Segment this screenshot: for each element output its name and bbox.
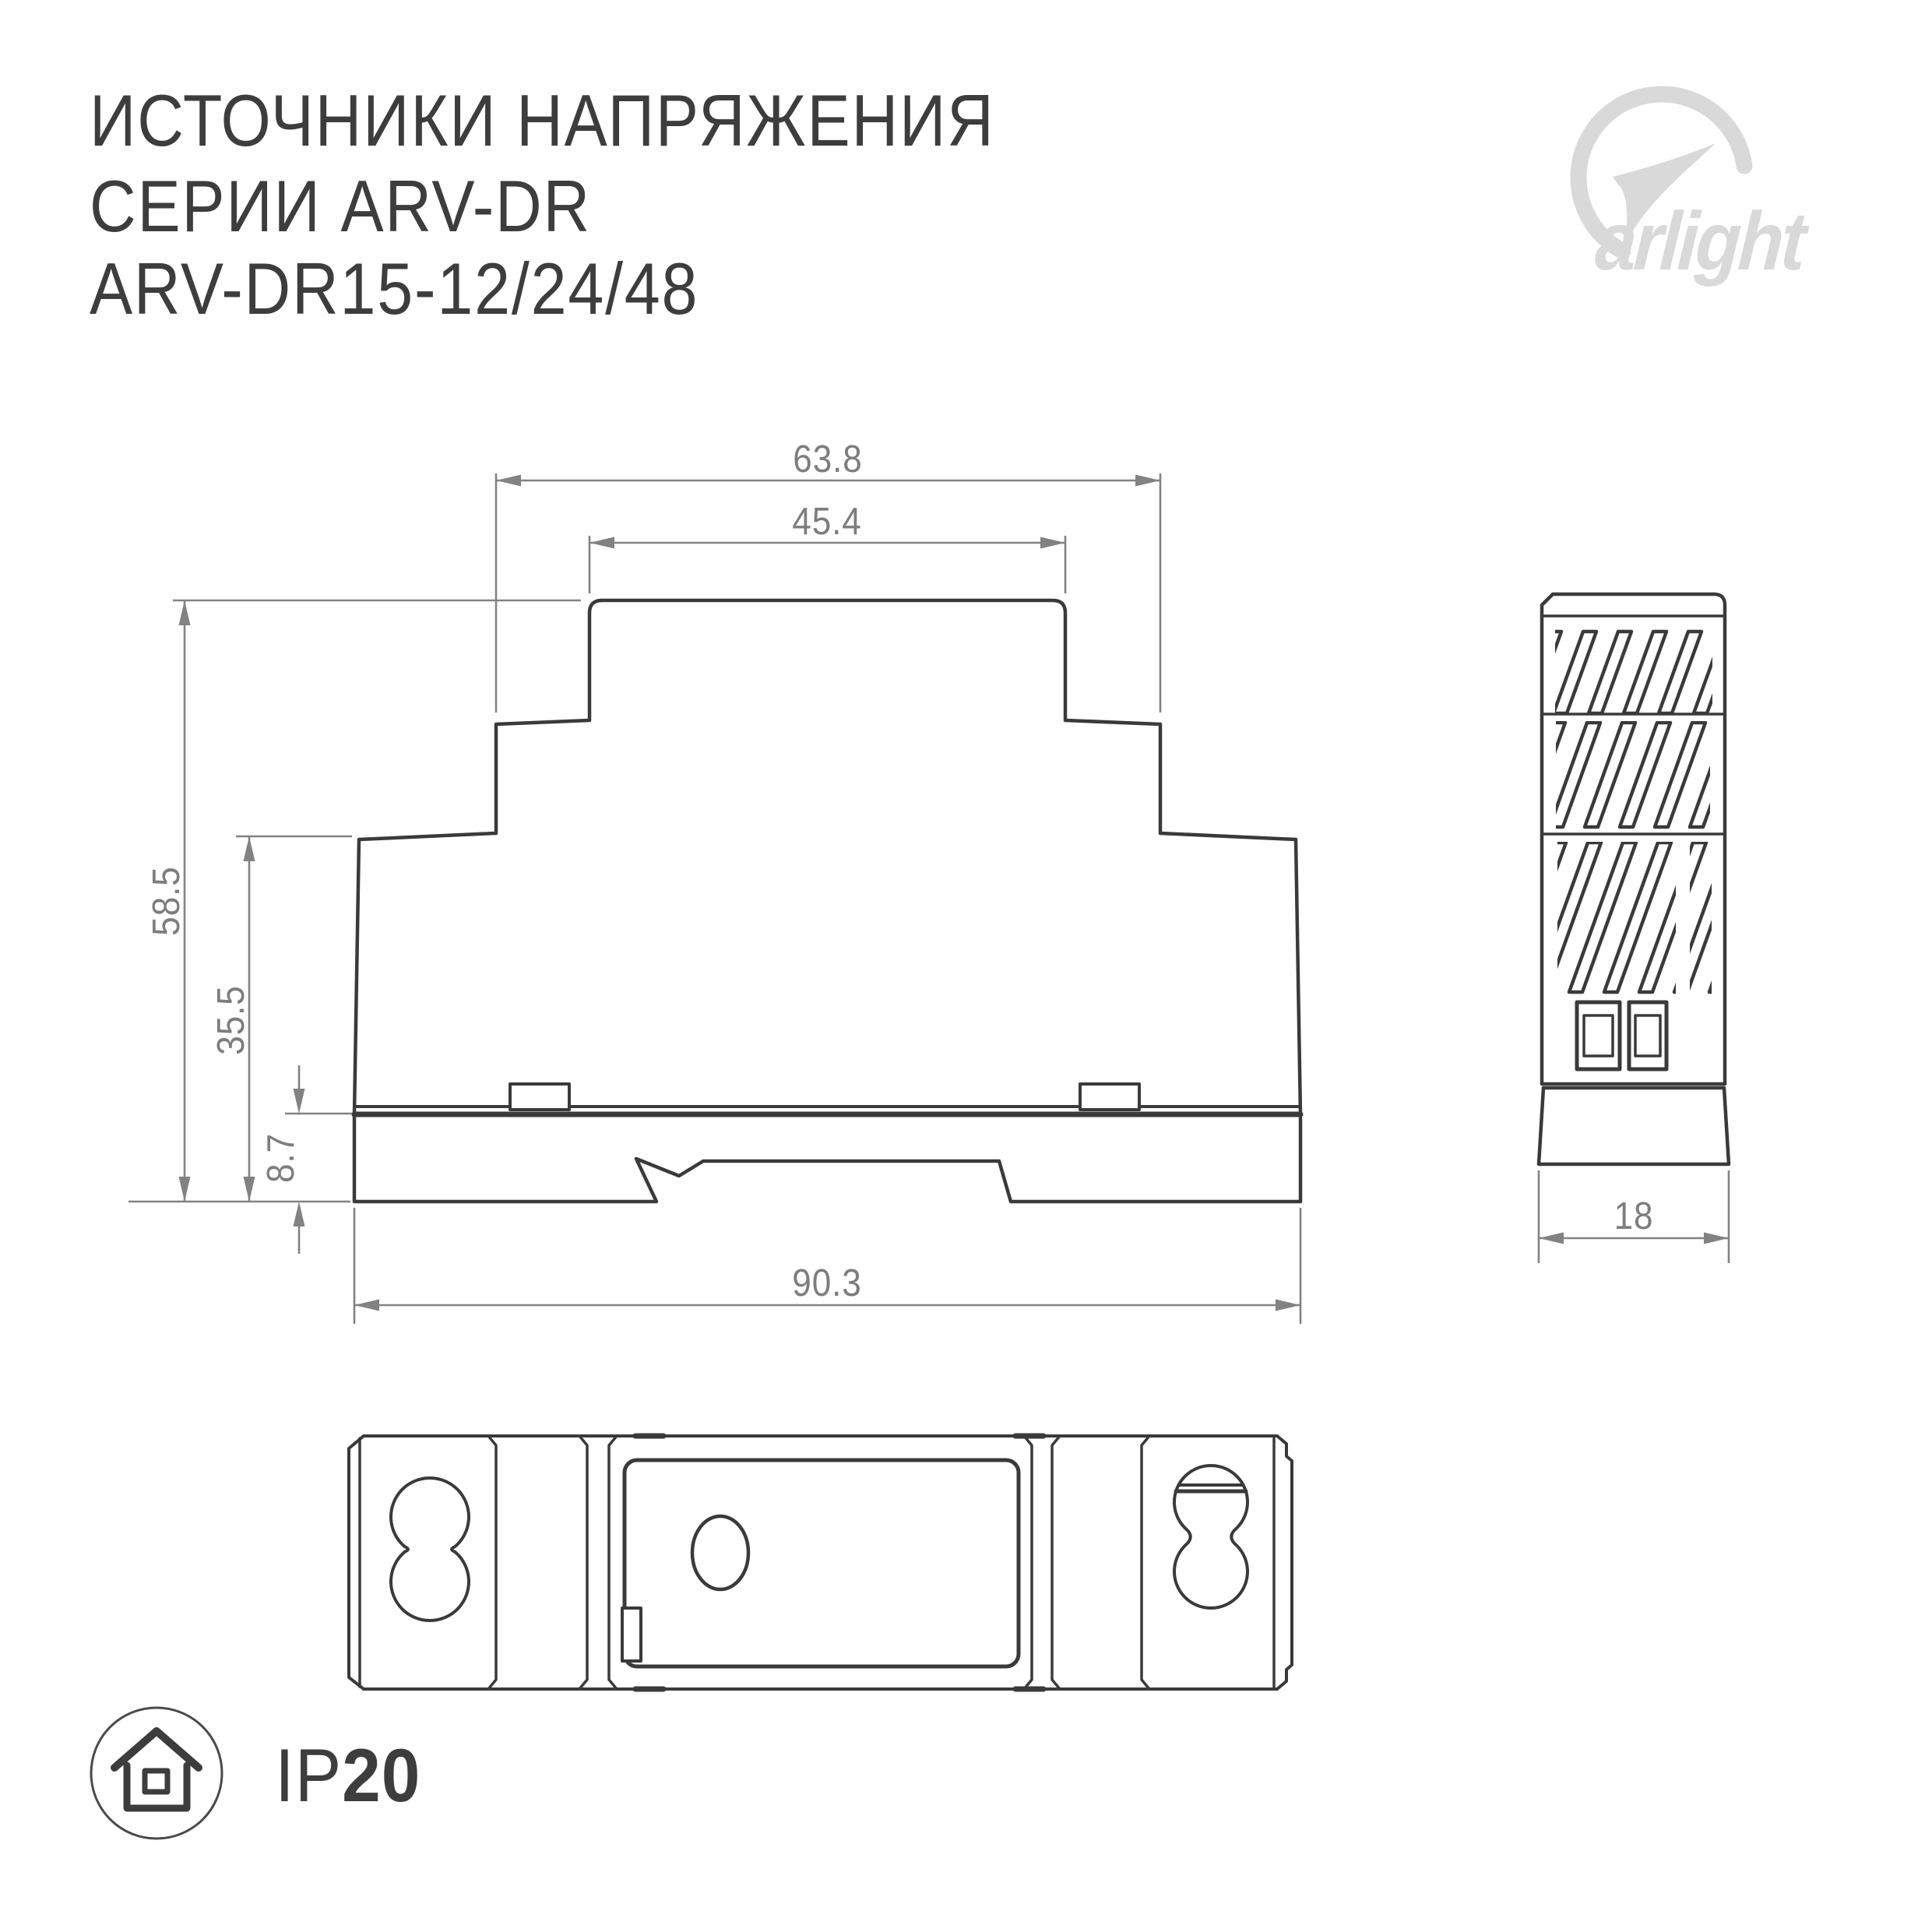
body-edge-right-outer: [1052, 1436, 1060, 1689]
label-panel: [625, 1460, 1019, 1666]
front-view: 63.8 45.4 58.5 35.5: [128, 438, 1300, 1324]
page-title-line1: ИСТОЧНИКИ НАПРЯЖЕНИЯ: [90, 79, 995, 161]
dimension-label: 8.7: [259, 1133, 302, 1183]
title-block: ИСТОЧНИКИ НАПРЯЖЕНИЯ СЕРИИ ARV-DR ARV-DR…: [90, 79, 995, 329]
terminal-block-left: [1577, 1002, 1620, 1069]
arrow-right-icon: [1704, 1233, 1729, 1244]
mounting-slot-right: [1080, 1084, 1139, 1110]
brand-logo: arlight: [1578, 94, 1812, 287]
arrow-up-icon: [179, 600, 191, 625]
arrow-up-icon: [244, 836, 255, 861]
left-end-cap: [349, 1436, 364, 1689]
arrow-left-icon: [589, 537, 614, 549]
body-edge-left-inner: [609, 1436, 617, 1689]
panel-tab: [622, 1608, 641, 1661]
ip-rating-badge: IP20: [91, 1708, 421, 1839]
arrow-right-icon: [1040, 537, 1065, 549]
dimension-label: 90.3: [792, 1262, 861, 1304]
ip-rating-text: IP20: [275, 1733, 421, 1818]
arrow-left-icon: [1539, 1233, 1564, 1244]
product-dimension-drawing-page: ИСТОЧНИКИ НАПРЯЖЕНИЯ СЕРИИ ARV-DR ARV-DR…: [0, 0, 1932, 1932]
dimension-label: 45.4: [792, 500, 861, 543]
house-window: [145, 1771, 167, 1792]
page-title-line2: СЕРИИ ARV-DR: [90, 165, 591, 247]
arrow-right-icon: [1135, 475, 1160, 487]
flange-edge-right: [1142, 1436, 1149, 1689]
arrow-right-icon: [1276, 1300, 1300, 1311]
dimension-label: 63.8: [793, 438, 862, 480]
bottom-view: [349, 1436, 1292, 1689]
arrow-down-icon: [244, 1177, 255, 1202]
ip-prefix: IP: [275, 1733, 342, 1818]
dimension-top-inner-width: 45.4: [589, 500, 1065, 593]
body-edge-right-inner: [1024, 1436, 1032, 1689]
dimension-label: 35.5: [209, 985, 252, 1054]
arrow-down-icon: [294, 1089, 305, 1114]
arrow-up-icon: [294, 1202, 305, 1226]
ip-value: 20: [342, 1733, 421, 1818]
terminal-block-right: [1629, 1002, 1666, 1069]
dimension-base-height: 8.7: [259, 1065, 352, 1254]
right-end-cap: [1277, 1436, 1292, 1689]
flange-edge-left: [488, 1436, 496, 1689]
dimension-depth: 18: [1539, 1170, 1729, 1263]
mounting-slot-left: [510, 1084, 569, 1110]
dimension-label: 18: [1614, 1195, 1654, 1237]
dimension-label: 58.5: [145, 866, 188, 935]
arrow-left-icon: [354, 1300, 379, 1311]
keyhole-slot-right: [1174, 1466, 1248, 1608]
house-in-circle-icon: [114, 1731, 199, 1808]
logo-wordmark: arlight: [1592, 195, 1811, 287]
side-base-outline: [1539, 1088, 1729, 1164]
arrow-left-icon: [496, 475, 521, 487]
body-edge-left-outer: [579, 1436, 587, 1689]
arrow-down-icon: [179, 1177, 191, 1202]
page-title-line3: ARV-DR15-12/24/48: [90, 248, 699, 329]
side-view: 18: [1499, 594, 1776, 1263]
dimension-base-width: 90.3: [354, 1208, 1300, 1324]
keyhole-slot-left: [391, 1478, 469, 1621]
